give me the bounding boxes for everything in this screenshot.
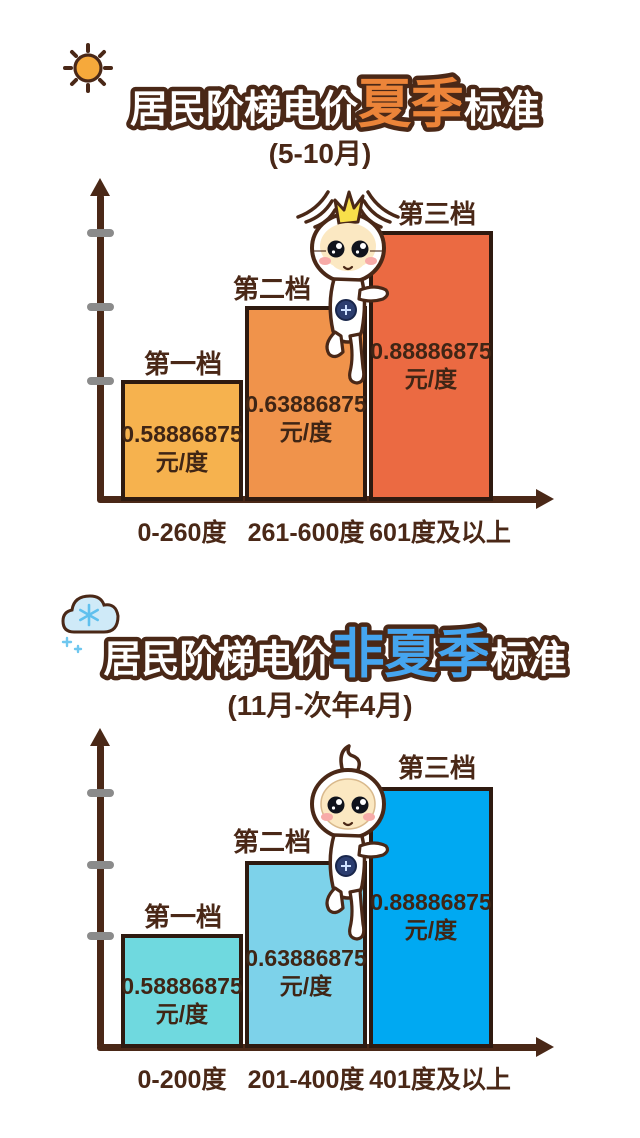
summer-tier1-range: 0-260度: [121, 513, 243, 549]
winter-axis-tick-1: [87, 932, 114, 940]
summer-tier3-range: 601度及以上: [358, 513, 522, 549]
summer-tier1-label: 第一档: [123, 344, 243, 381]
winter-tier2-price: 0.63886875 元/度: [245, 944, 367, 1000]
winter-tier3-range: 401度及以上: [358, 1060, 522, 1096]
winter-tier1-range: 0-200度: [121, 1060, 243, 1096]
price-value: 0.63886875: [245, 390, 367, 418]
winter-tier1-price: 0.58886875 元/度: [121, 972, 243, 1028]
summer-title-suffix: 标准: [464, 89, 540, 131]
svg-text:居民阶梯电价夏季标准: 居民阶梯电价夏季标准: [130, 75, 540, 134]
summer-subtitle: (5-10月): [0, 132, 640, 172]
summer-tier2-price: 0.63886875 元/度: [245, 390, 367, 446]
winter-tier2-range: 201-400度: [235, 1060, 377, 1096]
summer-x-axis-arrow-icon: [536, 489, 554, 509]
winter-y-axis-arrow-icon: [90, 728, 110, 746]
price-unit: 元/度: [121, 1000, 243, 1028]
price-value: 0.63886875: [245, 944, 367, 972]
winter-title-suffix: 标准: [491, 639, 567, 681]
price-unit: 元/度: [245, 418, 367, 446]
summer-title: 居民阶梯电价夏季标准: [0, 50, 640, 142]
summer-tier1-price: 0.58886875 元/度: [121, 420, 243, 476]
electricity-price-infographic: 居民阶梯电价夏季标准 (5-10月) 第一档 第二档 第三档 0.5888687…: [0, 0, 640, 1138]
price-unit: 元/度: [121, 448, 243, 476]
svg-text:居民阶梯电价非夏季标准: 居民阶梯电价非夏季标准: [103, 625, 566, 684]
summer-title-prefix: 居民阶梯电价: [130, 89, 358, 131]
summer-axis-tick-1: [87, 377, 114, 385]
summer-tier2-range: 261-600度: [235, 513, 377, 549]
winter-subtitle: (11月-次年4月): [0, 684, 640, 724]
summer-y-axis: [97, 194, 104, 502]
winter-title-prefix: 居民阶梯电价: [103, 639, 331, 681]
price-value: 0.58886875: [121, 420, 243, 448]
mascot-summer: [293, 186, 403, 391]
winter-axis-tick-2: [87, 861, 114, 869]
price-unit: 元/度: [245, 972, 367, 1000]
winter-axis-tick-3: [87, 789, 114, 797]
winter-x-axis-arrow-icon: [536, 1037, 554, 1057]
price-value: 0.58886875: [121, 972, 243, 1000]
mascot-winter: [293, 742, 403, 947]
summer-y-axis-arrow-icon: [90, 178, 110, 196]
winter-title-accent: 非夏季: [332, 625, 491, 684]
summer-axis-tick-2: [87, 303, 114, 311]
winter-tier1-label: 第一档: [123, 897, 243, 934]
summer-title-accent: 夏季: [358, 75, 464, 134]
summer-axis-tick-3: [87, 229, 114, 237]
winter-title: 居民阶梯电价非夏季标准: [0, 600, 640, 692]
